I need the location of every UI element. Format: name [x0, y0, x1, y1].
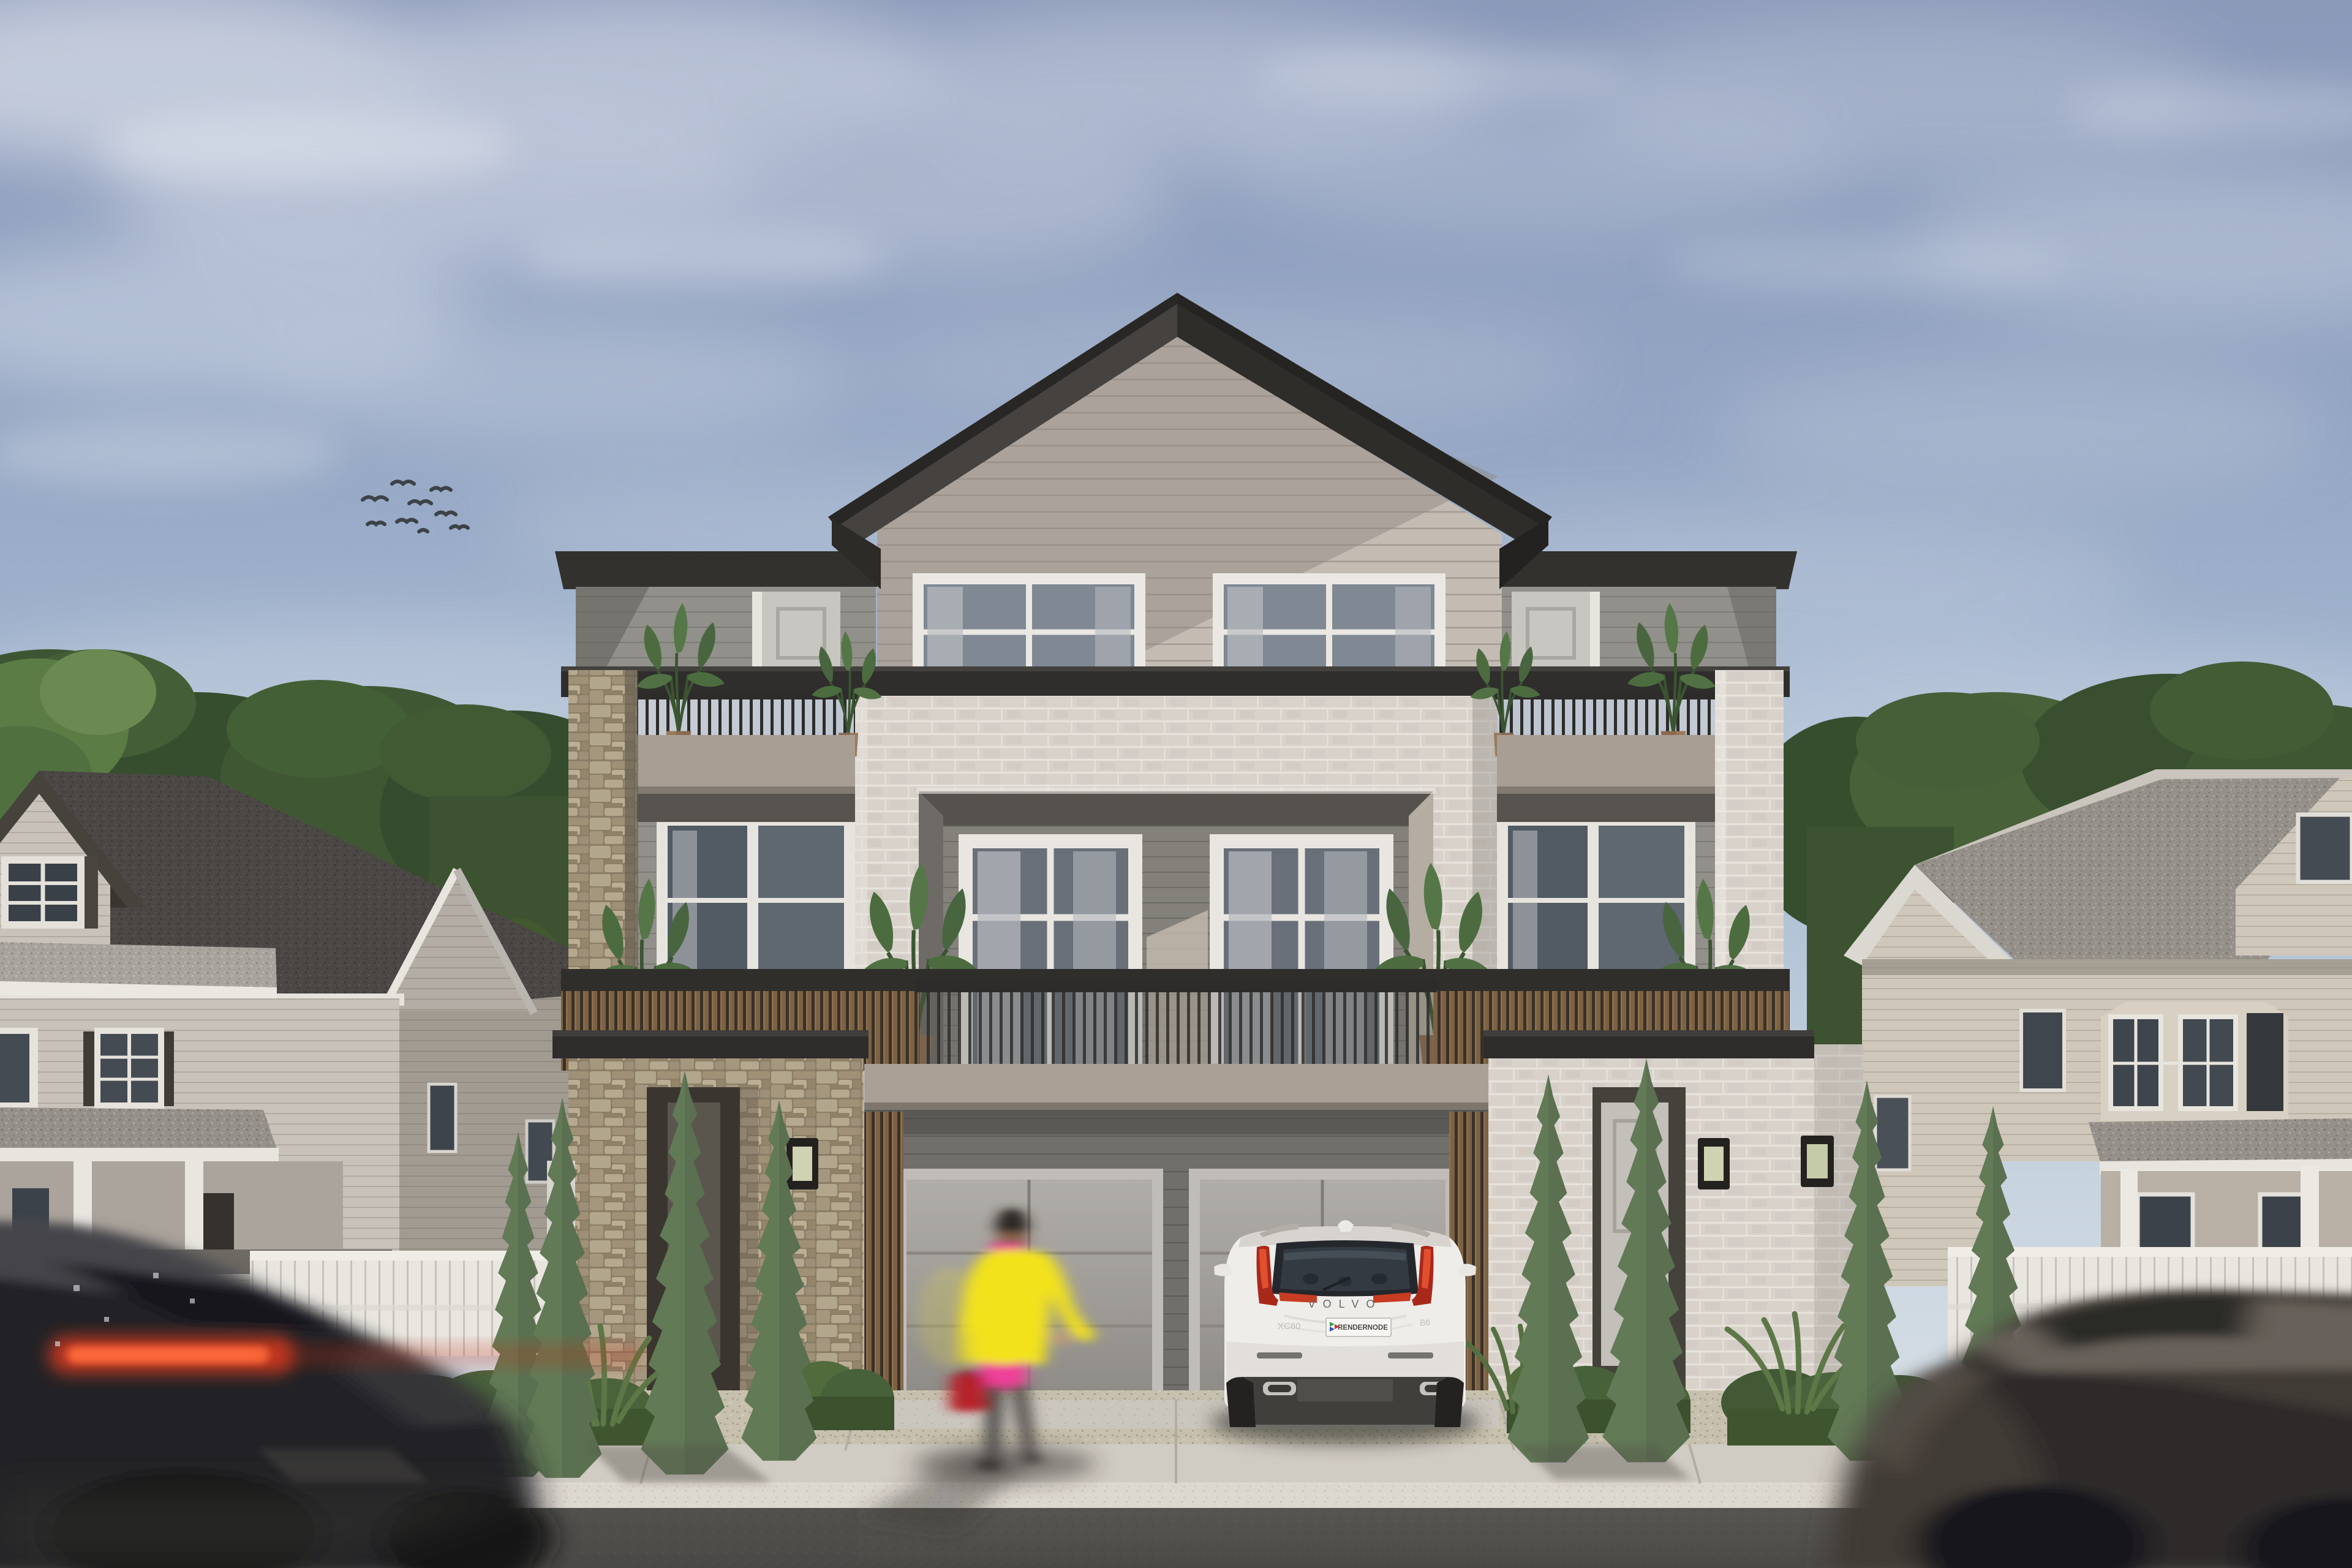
svg-text:XC60: XC60 — [1278, 1321, 1301, 1332]
svg-text:RENDERNODE: RENDERNODE — [1338, 1324, 1388, 1332]
svg-text:B6: B6 — [1420, 1317, 1430, 1327]
svg-text:VOLVO: VOLVO — [1308, 1298, 1382, 1310]
